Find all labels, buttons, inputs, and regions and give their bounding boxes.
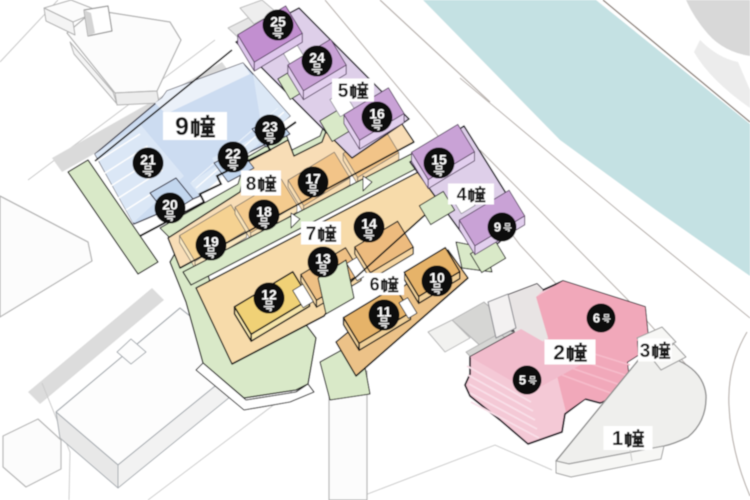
- svg-text:4: 4: [457, 185, 467, 205]
- svg-text:17: 17: [305, 171, 321, 187]
- svg-text:8: 8: [246, 174, 257, 195]
- svg-text:25: 25: [270, 14, 286, 30]
- svg-text:11: 11: [377, 304, 392, 320]
- svg-text:9: 9: [494, 220, 501, 235]
- svg-text:6: 6: [370, 275, 380, 295]
- svg-text:2: 2: [553, 342, 565, 365]
- svg-text:16: 16: [369, 106, 385, 122]
- svg-text:7: 7: [306, 224, 317, 245]
- svg-text:6: 6: [593, 311, 600, 326]
- svg-text:24: 24: [309, 50, 325, 66]
- svg-text:3: 3: [640, 341, 651, 362]
- svg-text:23: 23: [262, 119, 278, 135]
- svg-text:14: 14: [361, 216, 377, 232]
- svg-text:5: 5: [519, 373, 526, 388]
- svg-text:20: 20: [162, 197, 178, 213]
- svg-text:18: 18: [256, 204, 272, 220]
- svg-text:13: 13: [315, 251, 331, 267]
- svg-text:1: 1: [612, 428, 623, 450]
- svg-text:21: 21: [140, 152, 156, 168]
- svg-text:22: 22: [225, 146, 241, 162]
- svg-text:9: 9: [175, 113, 189, 141]
- svg-text:10: 10: [429, 270, 445, 286]
- svg-text:12: 12: [261, 287, 277, 303]
- svg-text:5: 5: [338, 81, 349, 102]
- svg-text:19: 19: [203, 234, 219, 250]
- svg-text:15: 15: [431, 152, 447, 168]
